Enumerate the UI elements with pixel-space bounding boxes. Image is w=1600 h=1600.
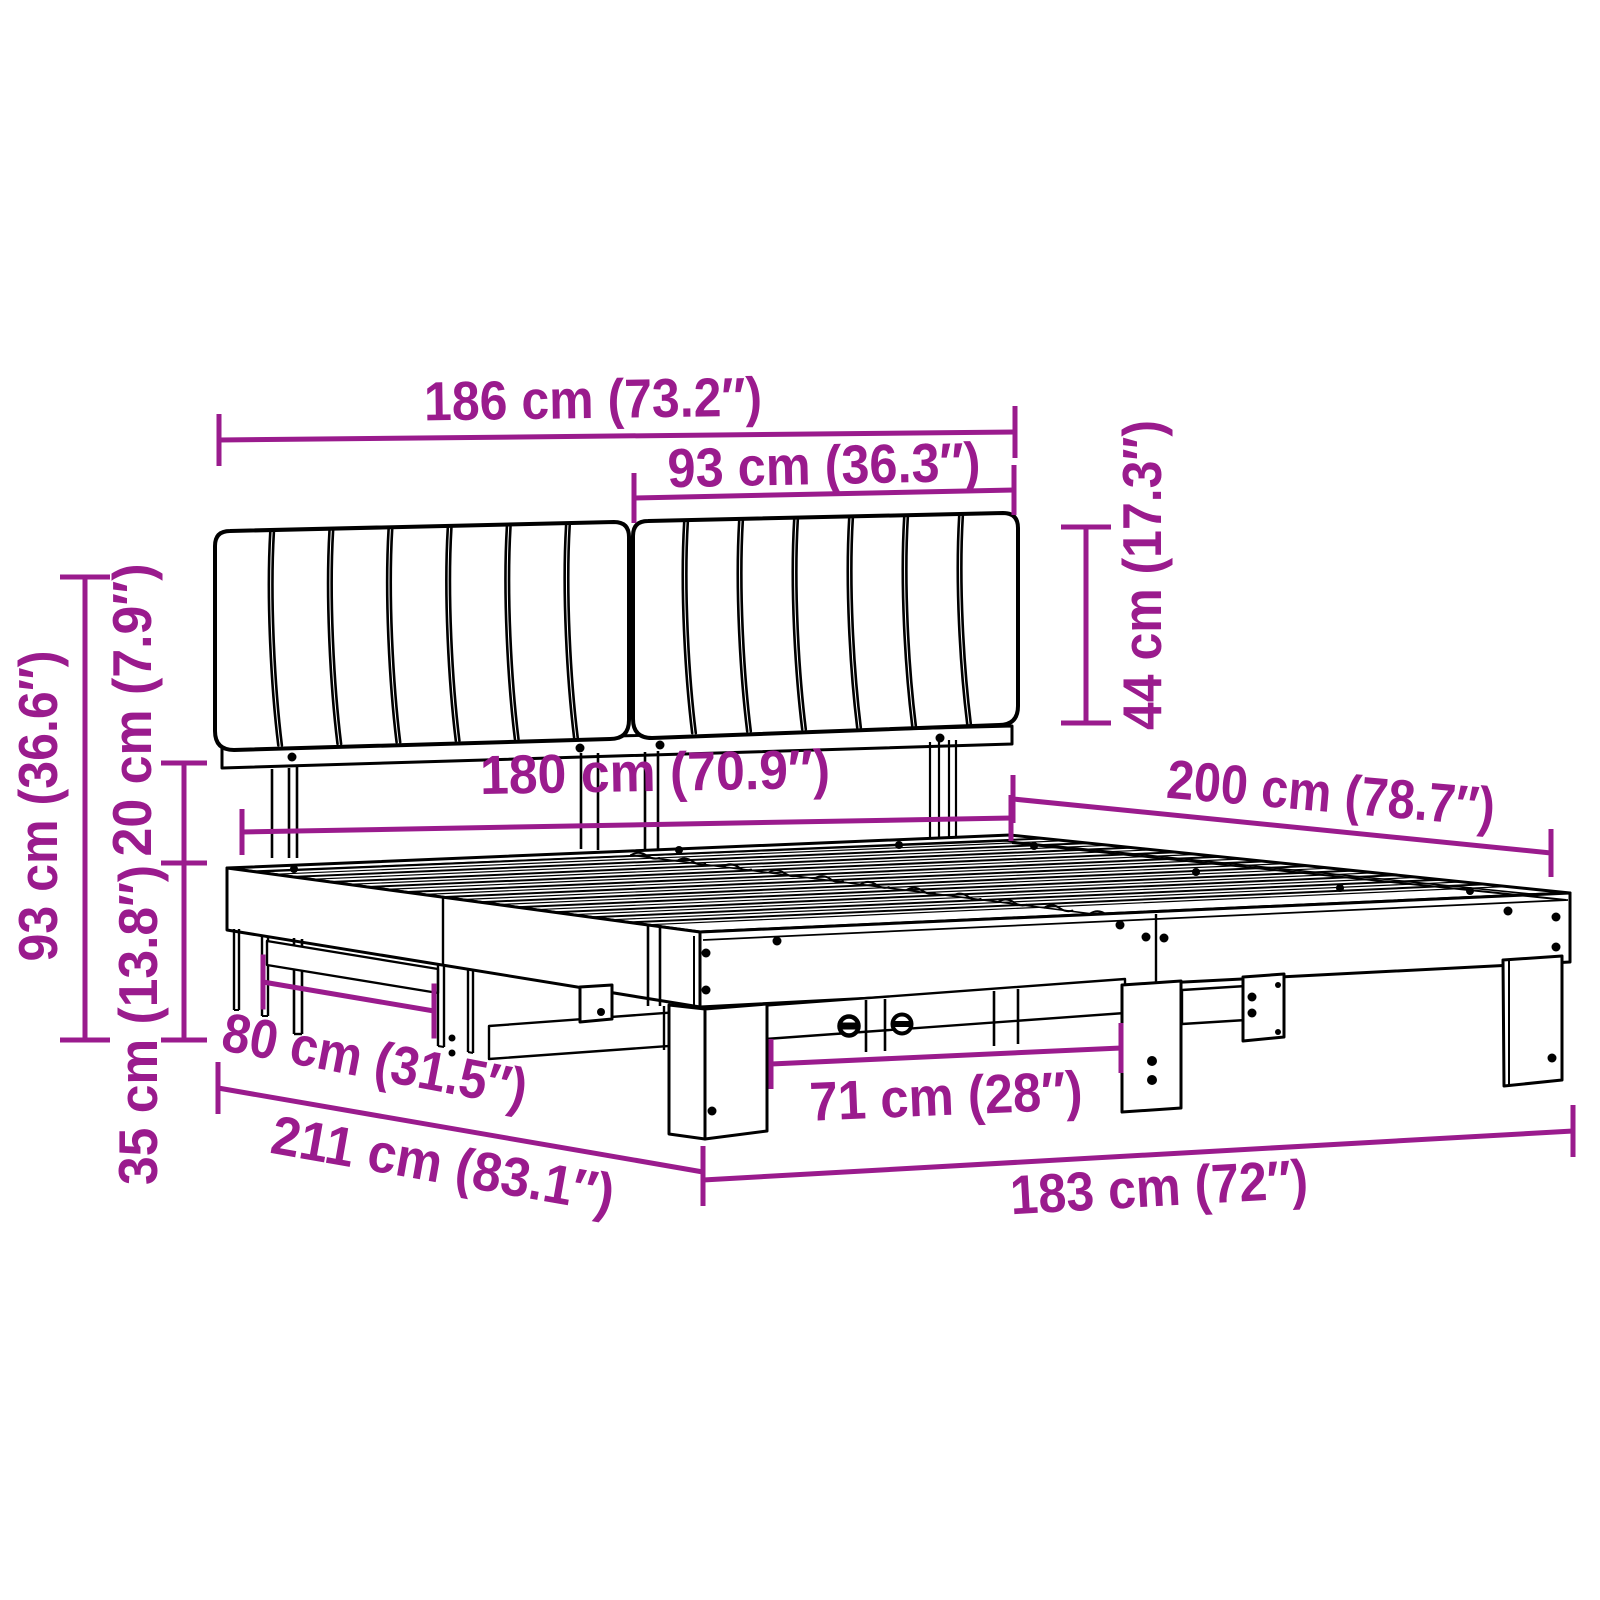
svg-text:186 cm (73.2″): 186 cm (73.2″): [424, 366, 763, 433]
svg-text:93 cm (36.3″): 93 cm (36.3″): [667, 431, 981, 500]
svg-text:180 cm (70.9″): 180 cm (70.9″): [479, 738, 830, 806]
svg-text:44 cm (17.3″): 44 cm (17.3″): [1111, 420, 1173, 730]
svg-text:20 cm (7.9″): 20 cm (7.9″): [101, 564, 163, 857]
svg-text:93 cm (36.6″): 93 cm (36.6″): [7, 651, 69, 962]
svg-text:35 cm (13.8″): 35 cm (13.8″): [107, 865, 169, 1185]
svg-text:71 cm (28″): 71 cm (28″): [808, 1059, 1083, 1132]
